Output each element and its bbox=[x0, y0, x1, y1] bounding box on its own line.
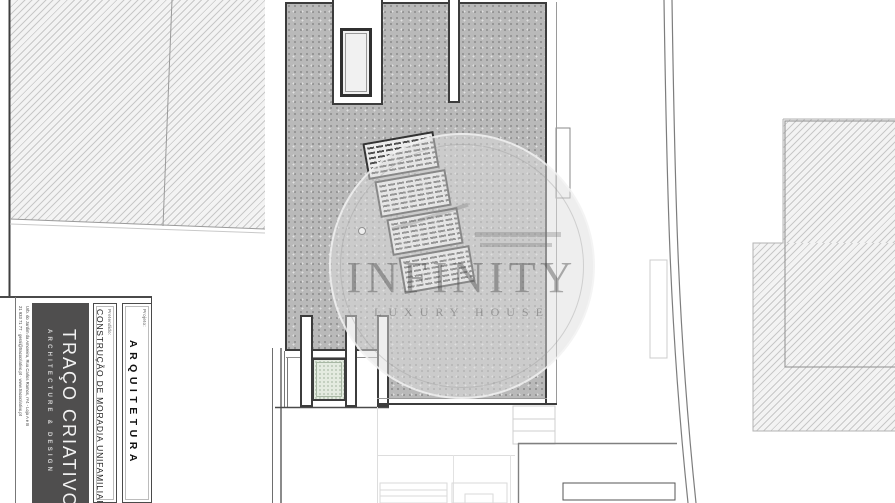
chimney-wall-2 bbox=[345, 315, 357, 407]
contact-details: 21 933 71 77 · geral@tracocriativo.pt · … bbox=[17, 306, 24, 503]
roof-edge-bottom-inner bbox=[377, 398, 547, 399]
request-value: CONSTRUÇÃO DE MORADIA UNIFAMILIAR bbox=[94, 309, 105, 497]
roof-skylight-glass bbox=[345, 33, 367, 92]
chimney-wall-3 bbox=[377, 315, 389, 407]
company-logo-block: TRAÇO CRIATIVO ARCHITECTURE & DESIGN bbox=[32, 303, 89, 503]
neighbor-plot-left-edge bbox=[10, 219, 265, 229]
terrace-furniture bbox=[380, 483, 507, 503]
roof-notch-slot bbox=[448, 0, 460, 103]
patio-skylight bbox=[312, 358, 346, 401]
company-name: TRAÇO CRIATIVO bbox=[56, 329, 82, 501]
contact-address: Urb. do Jardim da Amoreira, Rua Carlos R… bbox=[24, 306, 31, 503]
roof-edge-top-3 bbox=[460, 2, 547, 4]
roof-edge-right bbox=[545, 2, 547, 405]
main-roof-lower bbox=[377, 350, 547, 398]
company-tagline: ARCHITECTURE & DESIGN bbox=[41, 329, 56, 501]
site-plan-canvas: INFINITY LUXURY HOUSE Urb. do Jardim da … bbox=[0, 0, 895, 503]
neighbor-plot-divider bbox=[163, 0, 172, 226]
title-block-project-cell: Projeto: ARQUITETURA bbox=[122, 303, 152, 503]
roof-bumpout bbox=[556, 128, 570, 198]
exterior-stairs bbox=[513, 406, 555, 444]
project-value: ARQUITETURA bbox=[126, 309, 140, 497]
roof-edge-left bbox=[285, 2, 287, 351]
roof-edge-right-outer bbox=[556, 2, 557, 404]
roof-edge-top-1 bbox=[286, 2, 332, 4]
patio-skylight-inner bbox=[316, 362, 342, 397]
roof-skylight bbox=[340, 28, 372, 97]
terrace-equipment bbox=[563, 483, 675, 500]
gate-outline bbox=[650, 260, 667, 358]
neighbor-right-inner-outline bbox=[785, 121, 895, 367]
road-boundary-line-2 bbox=[672, 0, 696, 503]
title-block-request-cell: Pretendido: CONSTRUÇÃO DE MORADIA UNIFAM… bbox=[93, 303, 117, 503]
neighbor-plot-left-edge2 bbox=[10, 224, 265, 233]
neighbor-right-outline bbox=[753, 119, 895, 431]
project-label: Projeto: bbox=[140, 309, 148, 497]
request-label: Pretendido: bbox=[105, 309, 113, 497]
title-block-contact-column: Urb. do Jardim da Amoreira, Rua Carlos R… bbox=[16, 303, 31, 503]
roof-vent bbox=[358, 227, 366, 235]
roof-edge-top-2 bbox=[383, 2, 448, 4]
roof-edge-bottom bbox=[377, 403, 557, 405]
road-boundary-line-1 bbox=[664, 0, 688, 503]
